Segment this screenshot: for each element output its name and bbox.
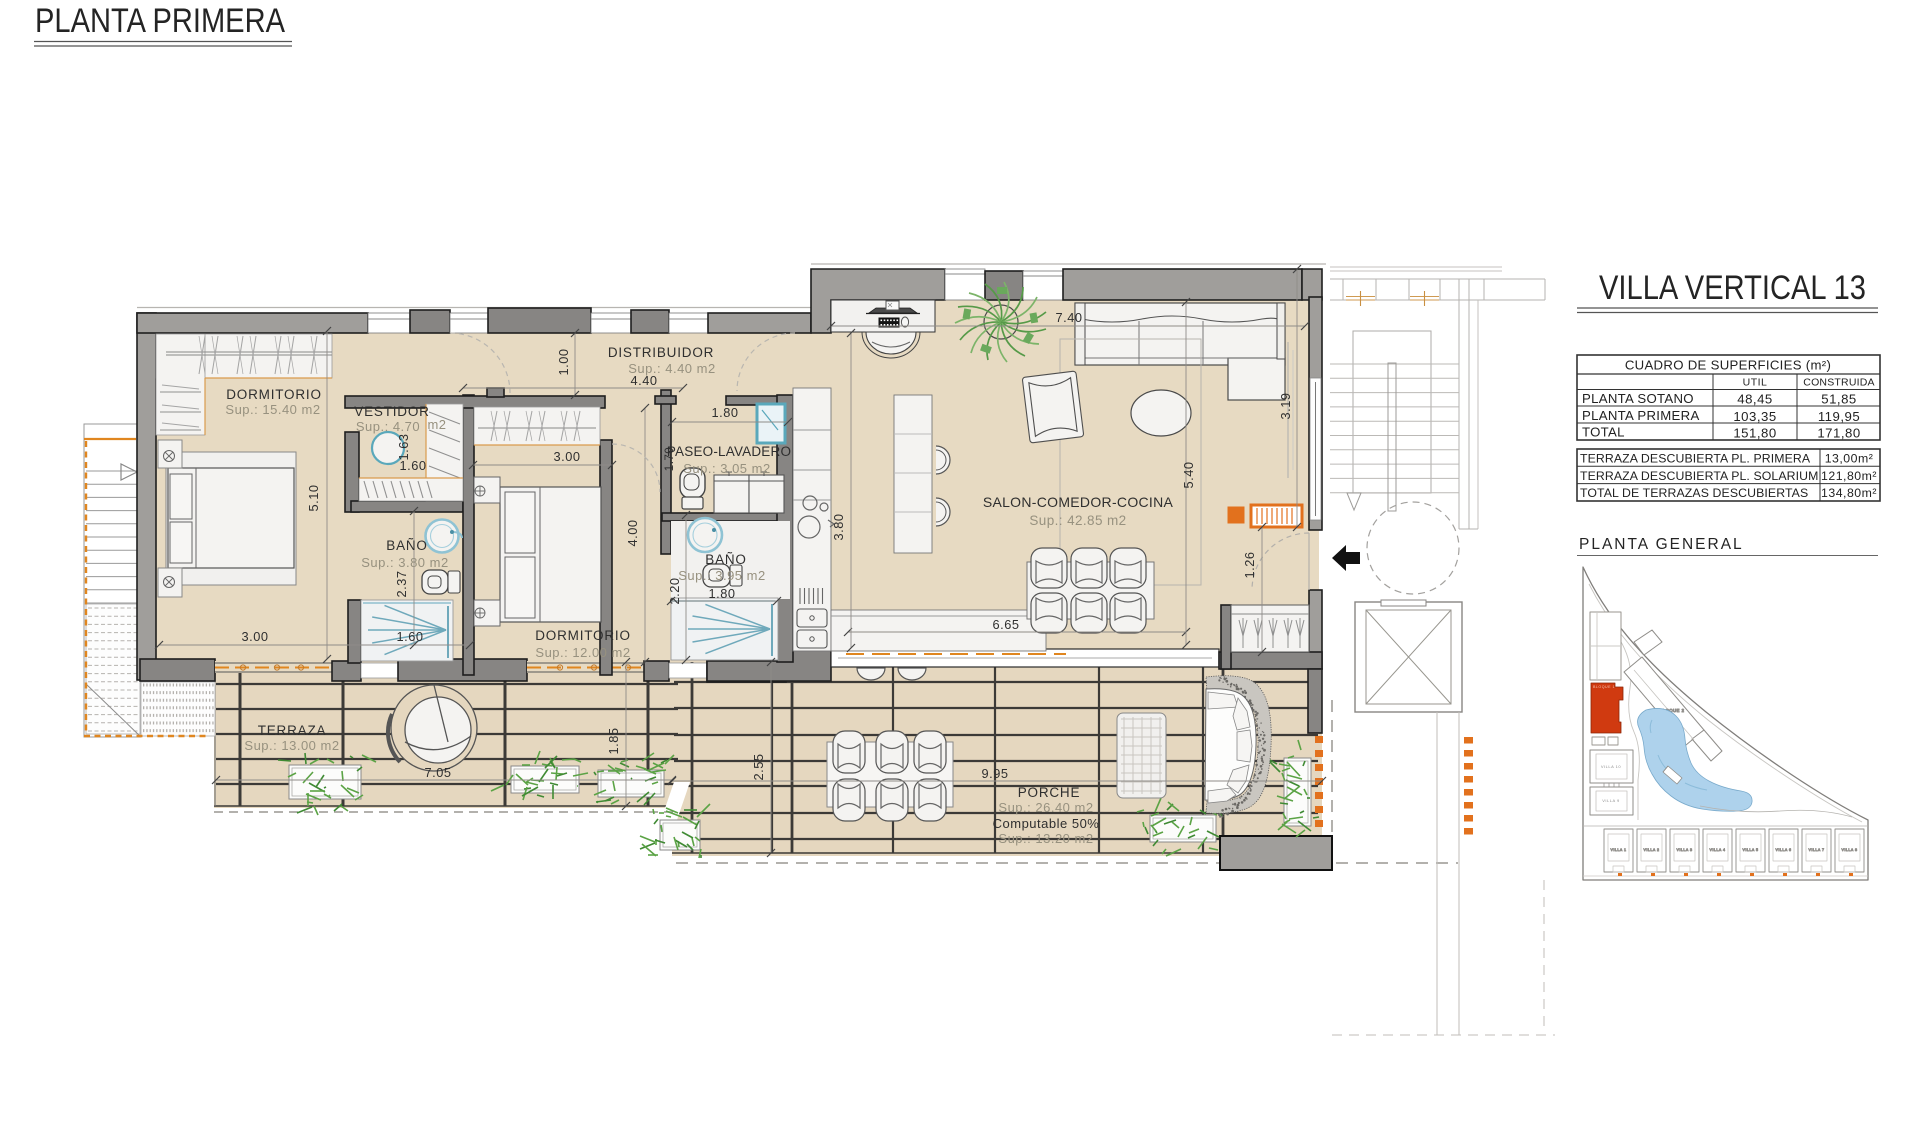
svg-text:VILLA 2: VILLA 2 xyxy=(1643,848,1659,852)
svg-text:Sup.: 15.40 m2: Sup.: 15.40 m2 xyxy=(225,402,320,417)
svg-text:119,95: 119,95 xyxy=(1818,409,1860,424)
svg-text:3.00: 3.00 xyxy=(242,629,269,644)
svg-text:4.00: 4.00 xyxy=(625,520,640,547)
svg-text:VILLA 1: VILLA 1 xyxy=(1610,848,1626,852)
svg-text:VILLA 3: VILLA 3 xyxy=(1676,848,1692,852)
svg-text:Sup.: 3.95 m2: Sup.: 3.95 m2 xyxy=(678,568,765,583)
svg-text:TOTAL: TOTAL xyxy=(1582,425,1625,440)
svg-text:CUADRO DE SUPERFICIES (m²): CUADRO DE SUPERFICIES (m²) xyxy=(1625,358,1831,373)
svg-text:CONSTRUIDA: CONSTRUIDA xyxy=(1803,377,1874,389)
svg-text:2.55: 2.55 xyxy=(751,754,766,781)
svg-text:2.20: 2.20 xyxy=(667,578,682,605)
svg-text:PLANTA SOTANO: PLANTA SOTANO xyxy=(1582,391,1694,406)
svg-text:m2: m2 xyxy=(427,417,446,432)
svg-text:103,35: 103,35 xyxy=(1733,409,1776,424)
svg-text:1.60: 1.60 xyxy=(397,629,424,644)
svg-text:171,80: 171,80 xyxy=(1817,426,1860,441)
svg-text:BLOQUE 1: BLOQUE 1 xyxy=(1593,685,1615,689)
svg-text:DISTRIBUIDOR: DISTRIBUIDOR xyxy=(608,345,714,360)
svg-text:VESTIDOR: VESTIDOR xyxy=(354,404,429,419)
svg-text:DORMITORIO: DORMITORIO xyxy=(535,628,631,643)
svg-text:VILLA 7: VILLA 7 xyxy=(1808,848,1824,852)
svg-text:6.65: 6.65 xyxy=(993,617,1020,632)
svg-text:151,80: 151,80 xyxy=(1733,426,1776,441)
svg-text:TERRAZA: TERRAZA xyxy=(258,723,327,738)
svg-text:3.00: 3.00 xyxy=(554,449,581,464)
svg-text:7.40: 7.40 xyxy=(1056,310,1083,325)
svg-text:TOTAL DE TERRAZAS DESCUBIERTAS: TOTAL DE TERRAZAS DESCUBIERTAS xyxy=(1580,486,1808,500)
svg-text:PLANTA GENERAL: PLANTA GENERAL xyxy=(1579,536,1744,553)
svg-text:SALON-COMEDOR-COCINA: SALON-COMEDOR-COCINA xyxy=(983,494,1174,510)
svg-text:9.95: 9.95 xyxy=(982,766,1009,781)
svg-text:VILLA 9: VILLA 9 xyxy=(1602,798,1620,803)
svg-text:DORMITORIO: DORMITORIO xyxy=(226,387,322,402)
svg-text:48,45: 48,45 xyxy=(1737,392,1773,407)
svg-text:VILLA 4: VILLA 4 xyxy=(1709,848,1725,852)
svg-text:VILLA VERTICAL 13: VILLA VERTICAL 13 xyxy=(1599,269,1866,307)
svg-text:1.00: 1.00 xyxy=(556,349,571,376)
svg-text:Sup.: 4.70: Sup.: 4.70 xyxy=(356,419,420,434)
svg-text:Sup.: 3.80 m2: Sup.: 3.80 m2 xyxy=(361,555,448,570)
svg-text:Sup.: 12.00 m2: Sup.: 12.00 m2 xyxy=(535,645,630,660)
svg-text:5.40: 5.40 xyxy=(1181,462,1196,489)
svg-text:51,85: 51,85 xyxy=(1821,392,1857,407)
svg-text:Sup.: 42.85 m2: Sup.: 42.85 m2 xyxy=(1029,513,1126,528)
svg-text:Sup.: 13.20 m2: Sup.: 13.20 m2 xyxy=(998,831,1093,846)
svg-text:TERRAZA DESCUBIERTA PL. PRIMER: TERRAZA DESCUBIERTA PL. PRIMERA xyxy=(1580,452,1811,466)
svg-text:134,80m²: 134,80m² xyxy=(1821,486,1877,500)
svg-text:7.05: 7.05 xyxy=(425,765,452,780)
svg-text:VILLA 8: VILLA 8 xyxy=(1841,848,1857,852)
svg-text:1.85: 1.85 xyxy=(606,728,621,755)
svg-text:3.19: 3.19 xyxy=(1278,393,1293,420)
svg-text:4.40: 4.40 xyxy=(631,373,658,388)
svg-text:1.63: 1.63 xyxy=(396,434,411,461)
svg-text:Sup.: 13.00 m2: Sup.: 13.00 m2 xyxy=(244,738,339,753)
svg-text:Computable 50%: Computable 50% xyxy=(993,816,1100,831)
svg-text:PLANTA PRIMERA: PLANTA PRIMERA xyxy=(1582,408,1700,423)
svg-text:1.26: 1.26 xyxy=(1242,552,1257,579)
svg-text:PORCHE: PORCHE xyxy=(1018,785,1081,800)
svg-text:VILLA 6: VILLA 6 xyxy=(1775,848,1791,852)
svg-text:UTIL: UTIL xyxy=(1743,377,1768,389)
svg-text:VILLA 5: VILLA 5 xyxy=(1742,848,1758,852)
svg-text:3.80: 3.80 xyxy=(831,514,846,541)
svg-text:BAÑO: BAÑO xyxy=(386,538,427,553)
svg-text:2.37: 2.37 xyxy=(394,571,409,598)
svg-text:Sup.: 26.40 m2: Sup.: 26.40 m2 xyxy=(998,800,1093,815)
svg-text:5.10: 5.10 xyxy=(306,485,321,512)
svg-text:PASEO-LAVADERO: PASEO-LAVADERO xyxy=(667,444,791,459)
svg-text:BAÑO: BAÑO xyxy=(705,552,746,567)
svg-text:1.80: 1.80 xyxy=(709,586,736,601)
svg-text:Sup.: 3.05 m2: Sup.: 3.05 m2 xyxy=(683,461,770,476)
svg-text:13,00m²: 13,00m² xyxy=(1825,452,1874,466)
svg-text:TERRAZA DESCUBIERTA PL. SOLARI: TERRAZA DESCUBIERTA PL. SOLARIUM xyxy=(1580,469,1819,483)
svg-text:121,80m²: 121,80m² xyxy=(1821,469,1877,483)
svg-text:PLANTA PRIMERA: PLANTA PRIMERA xyxy=(35,2,285,40)
svg-text:VILLA 10: VILLA 10 xyxy=(1601,764,1622,769)
svg-text:1.70: 1.70 xyxy=(664,447,676,471)
svg-text:1.80: 1.80 xyxy=(712,405,739,420)
